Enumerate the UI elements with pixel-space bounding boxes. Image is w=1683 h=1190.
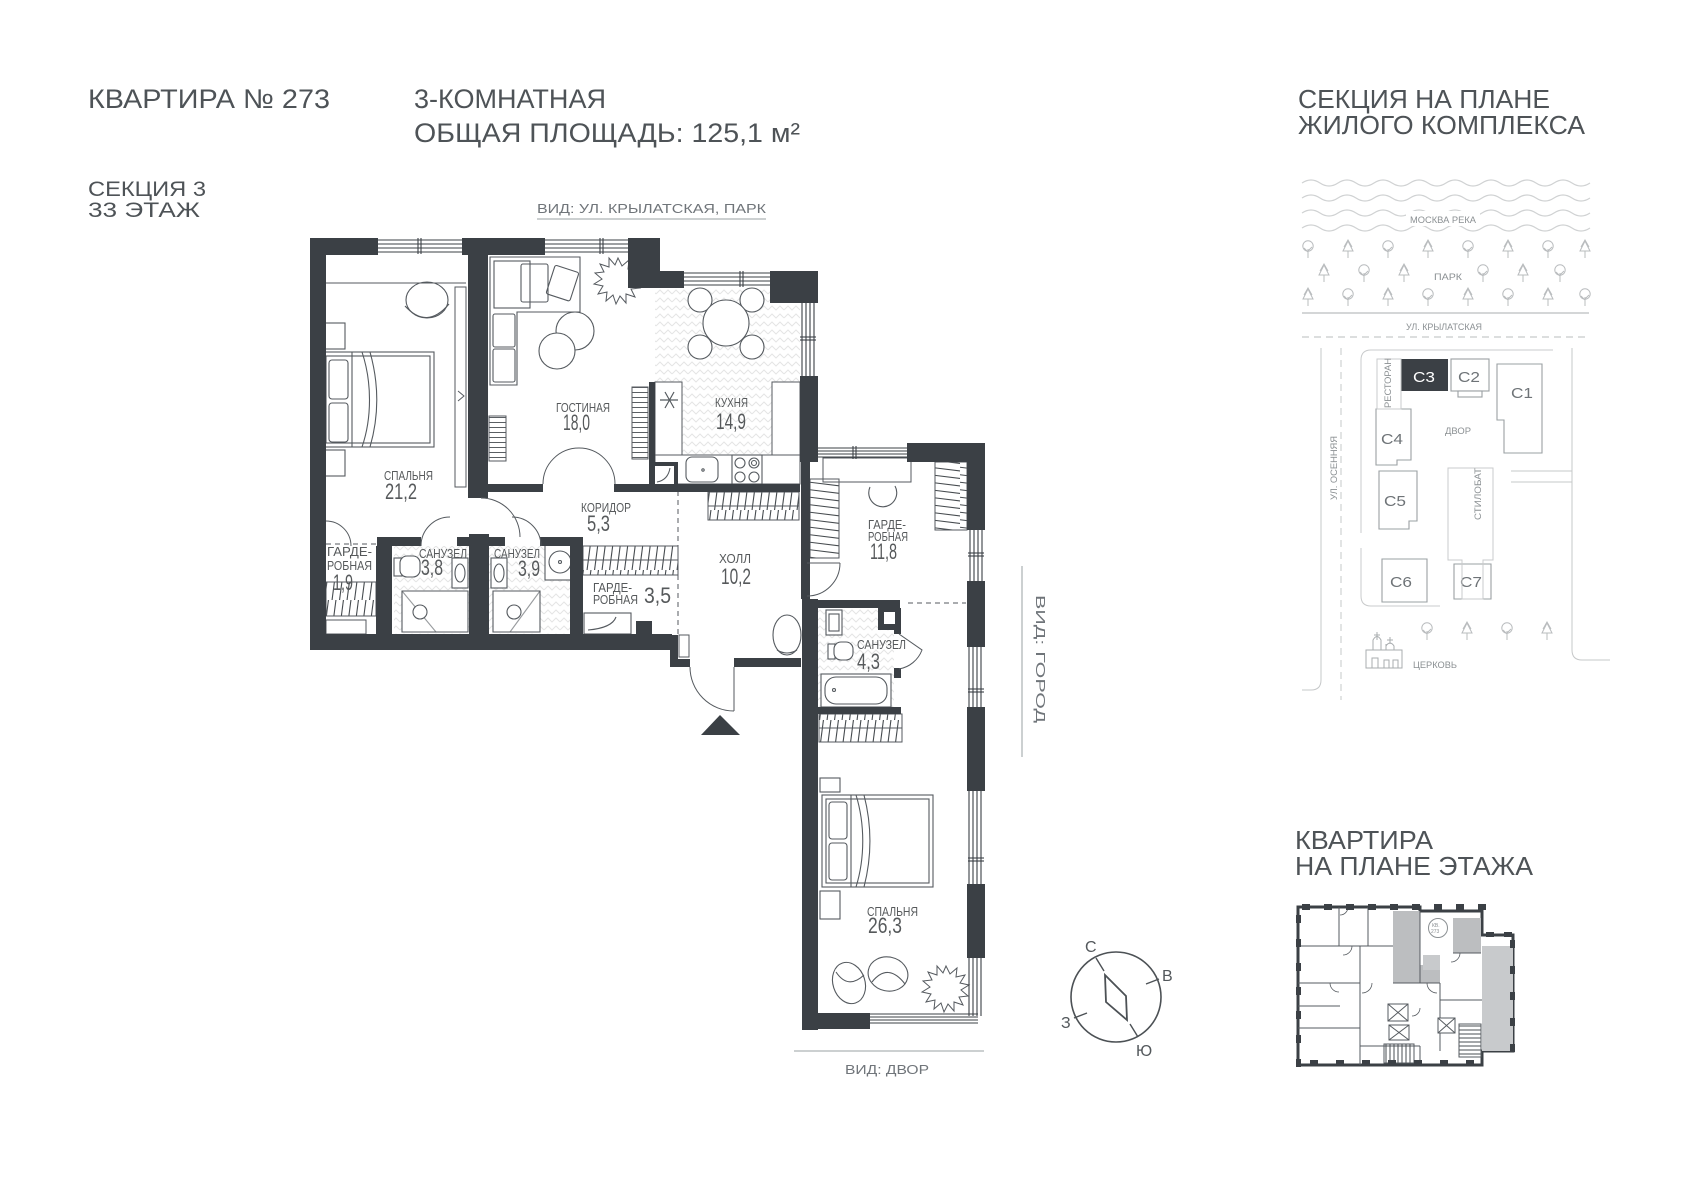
svg-text:З: З [1061, 1015, 1071, 1032]
svg-text:НА ПЛАНЕ ЭТАЖА: НА ПЛАНЕ ЭТАЖА [1295, 851, 1534, 881]
svg-text:5,3: 5,3 [587, 511, 610, 536]
svg-text:СТИЛОБАТ: СТИЛОБАТ [1473, 467, 1483, 520]
svg-text:21,2: 21,2 [385, 479, 417, 504]
svg-text:ДВОР: ДВОР [1445, 426, 1471, 436]
svg-text:С4: С4 [1381, 431, 1403, 448]
svg-text:В: В [1162, 968, 1173, 985]
svg-text:273: 273 [1431, 929, 1440, 935]
svg-text:ГАРДЕ-: ГАРДЕ- [327, 545, 372, 559]
svg-text:КУХНЯ: КУХНЯ [715, 396, 748, 410]
svg-text:3,9: 3,9 [518, 556, 540, 581]
svg-text:ВИД: ГОРОД: ВИД: ГОРОД [1033, 595, 1048, 723]
svg-text:С: С [1085, 939, 1097, 956]
svg-text:3,5: 3,5 [644, 583, 671, 608]
svg-text:С3: С3 [1413, 369, 1435, 386]
svg-text:1,9: 1,9 [333, 570, 353, 595]
svg-text:ЦЕРКОВЬ: ЦЕРКОВЬ [1413, 660, 1457, 670]
svg-text:26,3: 26,3 [868, 913, 902, 938]
svg-text:РЕСТОРАН: РЕСТОРАН [1383, 358, 1393, 408]
svg-text:ВИД: УЛ. КРЫЛАТСКАЯ, ПАРК: ВИД: УЛ. КРЫЛАТСКАЯ, ПАРК [537, 201, 767, 216]
svg-text:УЛ. ОСЕННЯЯ: УЛ. ОСЕННЯЯ [1329, 436, 1339, 500]
svg-text:10,2: 10,2 [721, 564, 751, 589]
svg-text:14,9: 14,9 [716, 409, 746, 434]
svg-text:МОСКВА РЕКА: МОСКВА РЕКА [1410, 215, 1476, 225]
svg-text:ЖИЛОГО КОМПЛЕКСА: ЖИЛОГО КОМПЛЕКСА [1298, 110, 1586, 140]
svg-text:3,8: 3,8 [421, 555, 443, 580]
svg-text:С6: С6 [1390, 574, 1412, 591]
svg-text:ПАРК: ПАРК [1434, 272, 1463, 282]
svg-text:КВАРТИРА № 273: КВАРТИРА № 273 [88, 84, 330, 114]
svg-text:С1: С1 [1511, 385, 1533, 402]
svg-text:ВИД: ДВОР: ВИД: ДВОР [845, 1062, 929, 1077]
svg-text:4,3: 4,3 [857, 649, 880, 674]
svg-text:11,8: 11,8 [870, 539, 897, 564]
svg-text:3-КОМНАТНАЯ: 3-КОМНАТНАЯ [414, 84, 606, 114]
svg-text:ОБЩАЯ ПЛОЩАДЬ: 125,1 м²: ОБЩАЯ ПЛОЩАДЬ: 125,1 м² [414, 118, 800, 148]
svg-text:Ю: Ю [1136, 1043, 1152, 1060]
svg-text:РОБНАЯ: РОБНАЯ [593, 593, 638, 607]
svg-text:С5: С5 [1384, 493, 1406, 510]
svg-text:С7: С7 [1460, 574, 1482, 591]
svg-text:СЕКЦИЯ 3: СЕКЦИЯ 3 [88, 178, 206, 201]
svg-text:УЛ. КРЫЛАТСКАЯ: УЛ. КРЫЛАТСКАЯ [1406, 322, 1482, 332]
svg-text:С2: С2 [1458, 369, 1480, 386]
svg-text:33 ЭТАЖ: 33 ЭТАЖ [88, 199, 201, 222]
svg-text:18,0: 18,0 [563, 410, 590, 435]
